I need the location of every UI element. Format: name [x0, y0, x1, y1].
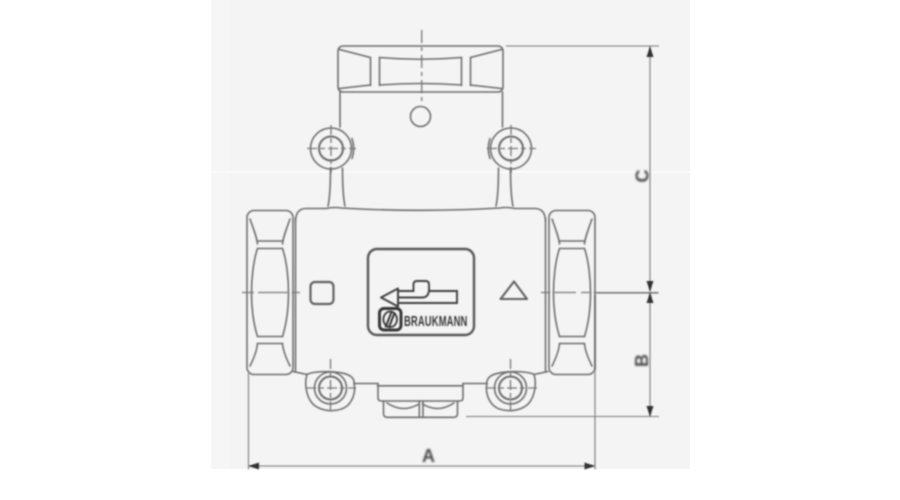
svg-text:B: B [632, 354, 652, 367]
svg-text:BRAUKMANN: BRAUKMANN [404, 313, 468, 330]
svg-text:A: A [422, 446, 435, 466]
svg-text:C: C [633, 170, 653, 183]
